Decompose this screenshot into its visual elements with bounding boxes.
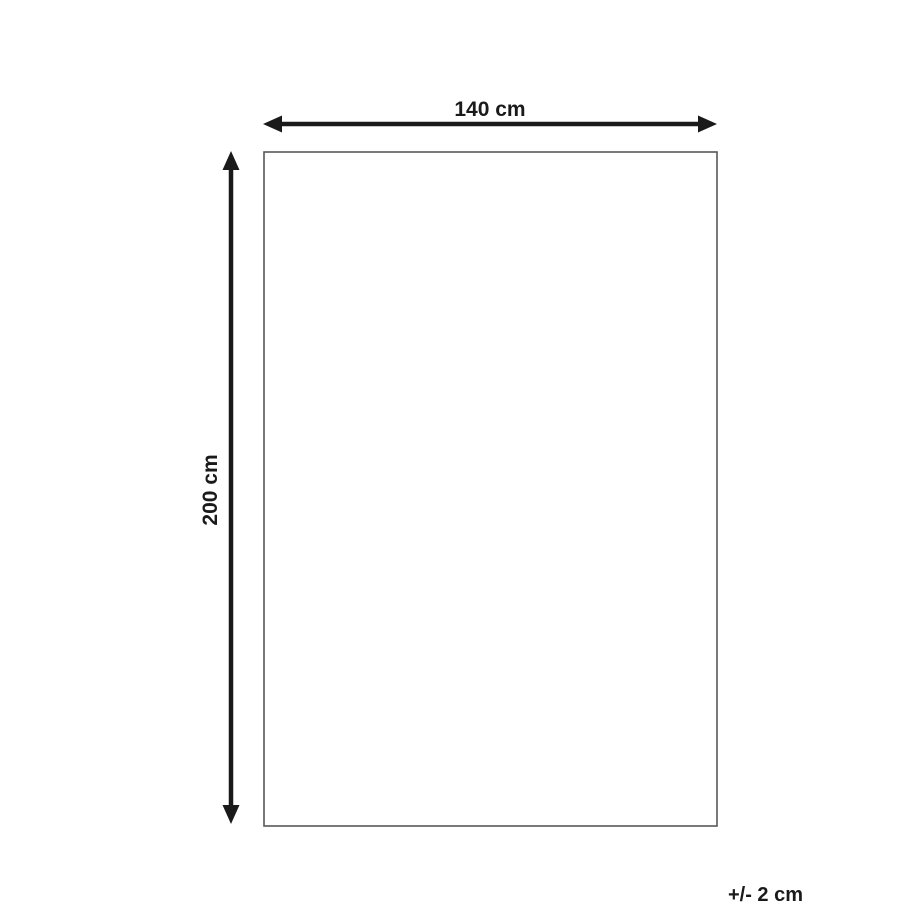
width-arrowhead-left-icon xyxy=(263,116,282,133)
diagram-svg: 140 cm 200 cm +/- 2 cm xyxy=(0,0,920,920)
dimension-diagram: 140 cm 200 cm +/- 2 cm xyxy=(0,0,920,920)
height-arrowhead-top-icon xyxy=(223,151,240,170)
height-dimension-label: 200 cm xyxy=(199,454,222,525)
product-outline-rect xyxy=(264,152,717,826)
tolerance-label: +/- 2 cm xyxy=(728,884,803,906)
width-dimension-label: 140 cm xyxy=(454,98,525,121)
width-arrowhead-right-icon xyxy=(698,116,717,133)
height-arrowhead-bottom-icon xyxy=(223,805,240,824)
